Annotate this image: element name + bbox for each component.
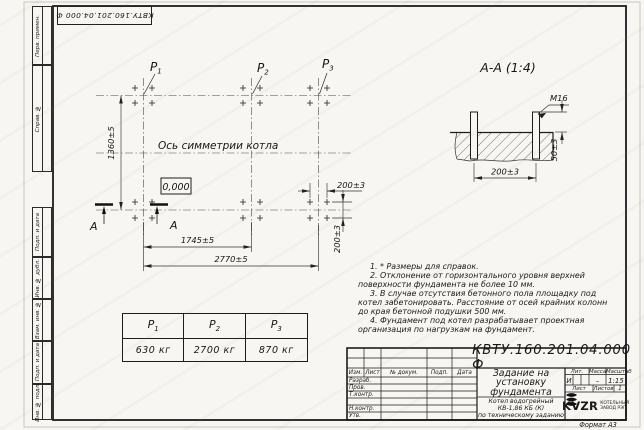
level-mark-value: 0,000: [162, 182, 189, 193]
load-point-leaders: [144, 73, 327, 94]
role-tkontr: Т.контр.: [349, 392, 374, 398]
load-table-value: 2700 кг: [184, 339, 245, 361]
dim-1745-label: 1745±5: [181, 235, 214, 245]
margin-cell: Подп. и дата: [32, 207, 52, 257]
load-point-label-2: P2: [257, 61, 269, 77]
scale-header: Масштаб: [606, 369, 626, 375]
mass-value: –: [589, 377, 606, 385]
lit-value: И: [565, 377, 573, 385]
load-point-label-3: P3: [322, 57, 334, 73]
anchor-bolt-left: [471, 112, 478, 159]
load-point-label-1: P1: [150, 60, 162, 76]
change-header-izm: Изм.: [347, 370, 364, 376]
change-header-podp: Подп.: [427, 370, 452, 376]
note-item: 2. Отклонение от горизонтального уровня …: [358, 271, 615, 289]
document-number: КВТУ.160.201.04.000 Ф: [477, 348, 626, 368]
change-header-docnum: № докум.: [381, 370, 427, 376]
change-header-data: Дата: [452, 370, 477, 376]
technical-notes: 1. * Размеры для справок. 2. Отклонение …: [358, 262, 615, 334]
coil-icon: [565, 392, 578, 407]
dim-2770-label: 2770±5: [214, 254, 247, 264]
section-title: А-А (1:4): [479, 60, 535, 75]
margin-cell: Инв. № подл.: [32, 384, 52, 420]
note-item: 3. В случае отсутствия бетонного пола пл…: [358, 289, 615, 316]
margin-cell: Взам. инв. №: [32, 299, 52, 341]
margin-cell: Подп. и дата: [32, 341, 52, 384]
drawing-sheet: P1 P2 P3 Ось симметрии котла 0,000 1360±…: [0, 0, 644, 430]
plan-view: [95, 73, 362, 271]
section-letter-left: А: [89, 220, 98, 233]
margin-label: Подп. и дата: [35, 343, 41, 381]
load-table-value: 630 кг: [123, 339, 184, 361]
note-item: 4. Фундамент под котел разрабатывает про…: [358, 316, 615, 334]
role-razrab: Разраб.: [349, 378, 371, 384]
dim-200v-label: 200±3: [332, 225, 342, 253]
margin-label: Перв. примен.: [35, 15, 41, 57]
role-nkontr: Н.контр.: [349, 406, 374, 412]
margin-label: Взам. инв. №: [35, 301, 41, 339]
margin-cell: Справ. №: [32, 65, 52, 172]
section-cut-marks: [95, 205, 168, 225]
role-prov: Пров.: [349, 385, 366, 391]
load-table-value: 870 кг: [246, 339, 307, 361]
top-stamp-number: КВТУ.160.201.04.000 Ф: [56, 11, 154, 20]
margin-label: Инв. № подл.: [35, 383, 41, 422]
margin-label: Справ. №: [35, 105, 41, 132]
margin-cell: Перв. примен.: [32, 6, 52, 65]
format-label: Формат А3: [570, 421, 626, 429]
top-stamp: КВТУ.160.201.04.000 Ф: [57, 6, 152, 25]
note-item: 1. * Размеры для справок.: [358, 262, 615, 271]
product-name: Котел водогрейный КВ-1,86 КБ (К) по техн…: [477, 398, 565, 419]
dim-arrowheads: [119, 96, 345, 268]
role-utv: Утв.: [349, 413, 361, 419]
load-table-header: P2: [184, 314, 245, 339]
thread-label: М16: [550, 93, 568, 103]
manufacturer-logo: KVZR КОТЕЛЬНЫЙ ЗАВОД РЭП: [565, 392, 626, 420]
scale-value: 1:15: [606, 377, 626, 385]
margin-label: Инв. № дубл.: [35, 259, 41, 297]
axis-lines: [96, 78, 352, 236]
symmetry-axis-label: Ось симметрии котла: [158, 140, 278, 152]
section-letter-right: А: [169, 219, 178, 232]
load-table-header: P1: [123, 314, 184, 339]
mass-header: Масса: [589, 369, 606, 375]
load-table: P1 P2 P3 630 кг 2700 кг 870 кг: [122, 313, 308, 362]
load-table-header: P3: [246, 314, 307, 339]
anchor-bolt-right: [533, 112, 540, 159]
margin-cell: Инв. № дубл.: [32, 257, 52, 299]
dim-200h-label: 200±3: [337, 180, 365, 190]
dim-50-label: 50±3: [549, 139, 559, 162]
logo-caption: КОТЕЛЬНЫЙ ЗАВОД РЭП: [600, 401, 629, 412]
margin-label: Подп. и дата: [35, 213, 41, 251]
dim-1360-label: 1360±5: [106, 126, 116, 159]
change-header-list: Лист: [364, 370, 381, 376]
dim-200-section-label: 200±3: [491, 167, 519, 177]
lit-header: Лит.: [565, 369, 589, 375]
thread-leader: [538, 105, 569, 114]
drawing-title: Задание на установку фундамента: [477, 369, 565, 397]
